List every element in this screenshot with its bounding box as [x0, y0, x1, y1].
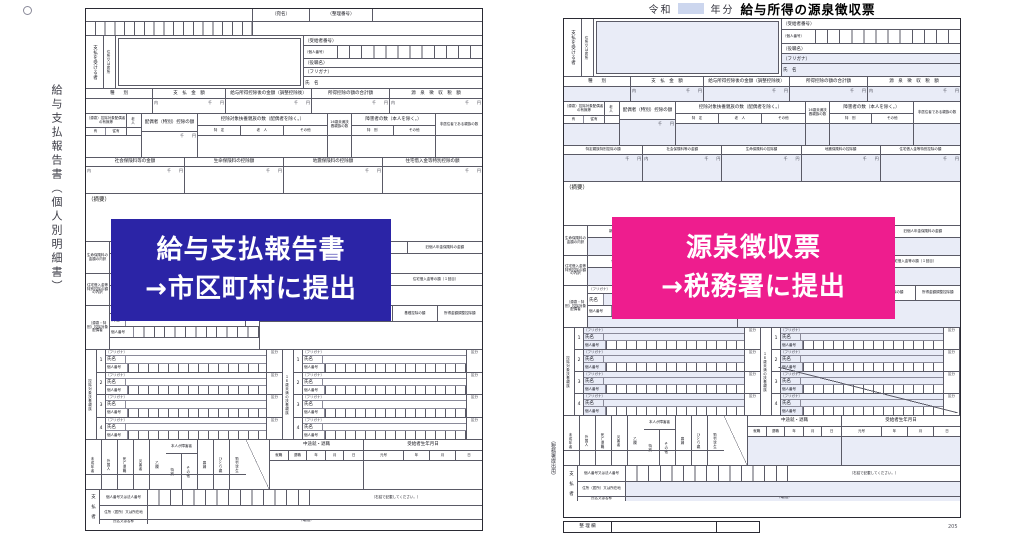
spouse-presence-label: （源泉）控除対象配偶者の有無等 [564, 102, 605, 115]
dependent-fields: （フリガナ） 氏名 個人番号 [302, 395, 467, 417]
header-cell: 特 定 [676, 114, 719, 123]
header-cell: 住宅借入金等特別控除の額 [383, 158, 482, 166]
header-cell: 源 泉 徴 収 税 額 [868, 77, 960, 86]
input-cell: 千 円 [722, 155, 801, 181]
personal-number-row: 個人番号 [781, 385, 943, 393]
name-label: 氏名 [106, 424, 126, 431]
amount-values: 内千 円 千 円 千 円 内千 円 [564, 87, 960, 102]
input-cell: （電話） [148, 520, 482, 524]
dependents-count: 控除対象扶養親族の数（配偶者を除く。） 特 定老 人その他 [676, 102, 806, 145]
spouse-block-label: （源泉・特別）控除対象配偶者 [564, 286, 588, 327]
nonresident-label: 非居住者である親族の数 [914, 102, 960, 124]
left-form-vertical-title: 給与支払報告書（個人別明細書） [48, 84, 64, 294]
header-cell: 未成年者 [86, 440, 102, 489]
personal-number-label: 個人番号 [781, 341, 803, 349]
row-number: 4 [97, 418, 105, 440]
nonresident-label: 非居住者である親族の数 [436, 114, 482, 136]
name-label: 氏名 [781, 356, 801, 362]
name-label: 氏名 [106, 356, 126, 363]
kubun-cell: 区分 [745, 394, 760, 415]
furigana-row: （フリガナ） [782, 54, 960, 64]
personal-number-label: 個人番号 [588, 306, 612, 316]
role-row: （役職名） [782, 44, 960, 54]
header-cell: 勤労学生 [708, 416, 724, 465]
birthdate-subcols: 元号年月日 [364, 451, 482, 461]
dependent-row: 1 （フリガナ） 氏名 個人番号 区分 [294, 350, 482, 373]
header-cell: 死亡退職 [118, 440, 134, 489]
input-cell: 千 円 [802, 155, 881, 181]
header-cell: その他 [872, 114, 914, 123]
name-label: 氏名 [588, 294, 604, 305]
payer-name-label: 氏名又は名称 [100, 520, 148, 524]
senyen-mark: 千 円 [863, 156, 879, 162]
rojin-label: 老人 [605, 102, 619, 115]
header-cell: 社会保険料等の金額 [643, 146, 722, 154]
birthdate-block: 受給者生年月日 元号年月日 [842, 416, 960, 465]
personal-number-label: 個人番号 [303, 431, 325, 439]
overlay-line1: 給与支払報告書 [156, 231, 345, 270]
header-cell: その他 [660, 430, 676, 465]
kubun-label: 区分 [749, 394, 756, 399]
header-cell: 未成年者 [564, 416, 580, 465]
senyen-mark: 千 円 [372, 100, 388, 106]
senyen-mark: 千 円 [465, 100, 481, 106]
form-title: 給与所得の源泉徴収票 [740, 0, 875, 18]
input-cell [564, 124, 619, 145]
senyen-mark: 千 円 [208, 100, 224, 106]
name-row: 氏名 [584, 356, 744, 363]
input-cell: 内千 円 [868, 87, 960, 101]
kubun-cell: 区分 [745, 372, 760, 393]
personal-number-row: （個人番号） [782, 30, 960, 44]
header-cell: 外国人 [102, 440, 118, 489]
header-cell: 元号 [364, 451, 404, 460]
amount-values: 内千 円 千 円 千 円 内千 円 [86, 99, 482, 114]
dependent-fields: （フリガナ） 氏名 個人番号 [105, 395, 267, 417]
row-number: 3 [97, 395, 105, 417]
overlay-line2: →市区町村に提出 [145, 270, 357, 309]
header-cell: 所得控除の額の合計額 [312, 89, 390, 98]
name-row: 氏名 [303, 401, 466, 409]
input-cell [364, 461, 482, 489]
recipient-block: 支払を受ける者 住所又は居所 （受給者番号） （個人番号） （役職名） （フリガ… [564, 19, 960, 77]
name-row: 氏名 [781, 378, 943, 385]
tekiyo-label: （摘要） [88, 195, 110, 203]
dependents-subcols: 特 定老 人その他 [676, 114, 805, 124]
header-cell: 災害者 [134, 440, 150, 489]
input-cell: 千 円 [185, 167, 284, 193]
overlay-line1: 源泉徴収票 [686, 229, 821, 268]
digit-boxes [128, 386, 266, 394]
personal-number-label: 個人番号 [106, 386, 128, 394]
midcareer-block: 中途就・退職 就職退職年月日 [270, 440, 364, 489]
header-cell: その他 [284, 126, 327, 135]
page: 給与支払報告書（個人別明細書） （宛名） （整理番号） 支払を受ける者 住所又は… [0, 0, 1024, 539]
input-cell [260, 322, 482, 349]
digit-boxes [325, 386, 466, 394]
input-cell [914, 124, 960, 145]
senyen-mark: 千 円 [943, 156, 959, 162]
disabled-count-label: 障害者の数（本人を除く。） [830, 102, 913, 114]
name-row: 氏名 [106, 424, 266, 432]
dependent-row: 3 （フリガナ） 氏名 個人番号 区分 [97, 395, 282, 418]
input-cell: 千 円 [704, 87, 790, 101]
personal-number-row: 個人番号 [303, 409, 466, 417]
furigana-label: （フリガナ） [303, 395, 324, 400]
input-cell [270, 461, 363, 489]
header-cell: 月 [326, 451, 345, 460]
uchi-mark: 内 [391, 100, 395, 106]
furigana-label: （フリガナ） [106, 395, 127, 400]
header-cell: 乙欄 [150, 440, 166, 489]
cell [605, 116, 619, 123]
name-label: 氏名 [303, 424, 323, 431]
spouse-presence: （源泉）控除対象配偶者の有無等老人 有従有 [564, 102, 620, 145]
name-label: 氏名 [584, 356, 604, 362]
name-row: 氏名 [303, 356, 466, 364]
status-row: 未成年者外国人死亡退職災害者乙欄 本人が障害者 特別その他 寡婦ひとり親勤労学生… [86, 440, 482, 490]
name-row: 氏名 [106, 379, 266, 387]
self-disabled-label: 本人が障害者 [166, 440, 197, 454]
personal-number-label: 個人番号 [303, 409, 325, 417]
payer-rows: 個人番号又は法人番号 （右詰で記載してください。） 住所（居所）又は所在地 氏名… [100, 490, 482, 524]
furigana-label: （フリガナ） [781, 350, 802, 355]
kubun-cell: 区分 [745, 328, 760, 349]
senyen-mark: 千 円 [365, 168, 381, 174]
tel-label: （電話） [298, 520, 314, 523]
row-number: 3 [772, 372, 780, 393]
header-cell: 社会保険料等の金額 [86, 158, 185, 166]
dependents-rows: 1 （フリガナ） 氏名 個人番号 区分 2 （フリガナ） 氏名 個人番号 区分 … [575, 328, 761, 415]
header-cell: 源 泉 徴 収 税 額 [390, 89, 482, 98]
recipient-block: 支払を受ける者 住所又は居所 （受給者番号） （個人番号） （役職名） （フリガ… [86, 36, 482, 89]
row-number: 2 [772, 350, 780, 371]
under16-count: 16歳未満扶養親族の数 [328, 114, 352, 157]
input-cell [830, 124, 913, 145]
self-disabled-label: 本人が障害者 [644, 416, 675, 430]
uchi-mark: 内 [632, 88, 636, 94]
dependent-fields: （フリガナ） 氏名 個人番号 [105, 373, 267, 395]
digit-boxes [606, 385, 744, 393]
digit-boxes [86, 22, 253, 35]
personal-number-label: （個人番号） [304, 46, 338, 58]
personal-number-row: 個人番号 [584, 363, 744, 371]
dependents-count: 控除対象扶養親族の数（配偶者を除く。） 特 定老 人その他 [198, 114, 328, 157]
furigana-row: （フリガナ） [304, 68, 482, 77]
row-number: 2 [294, 373, 302, 395]
top-digit-row [86, 22, 482, 36]
personal-number-label: 個人番号 [584, 363, 606, 371]
furigana-label: （フリガナ） [303, 418, 324, 423]
dependent-row: 4 （フリガナ） 氏名 個人番号 区分 [294, 418, 482, 440]
dependents-block: 控除対象扶養親族 1 （フリガナ） 氏名 個人番号 区分 2 （フリガナ） 氏名… [564, 328, 960, 416]
seiri-cell [717, 522, 759, 532]
name-label: 氏名 [781, 378, 801, 384]
furigana-label: （フリガナ） [584, 328, 605, 333]
under16-dependents-rows: 1 （フリガナ） 氏名 個人番号 区分 2 （フリガナ） 氏名 個人番号 区分 … [772, 328, 960, 415]
payer-label: 支 払 者 [564, 466, 578, 501]
birthdate-label: 受給者生年月日 [842, 416, 960, 427]
kubun-cell: 区分 [467, 418, 482, 440]
digit-boxes [325, 431, 466, 439]
personal-number-row: 個人番号 [303, 364, 466, 372]
kubun-cell: 区分 [467, 350, 482, 372]
senyen-mark: 千 円 [180, 133, 196, 139]
dependent-fields: （フリガナ） 氏名 個人番号 [780, 372, 944, 393]
payer-number-label: 個人番号又は法人番号 [100, 490, 148, 505]
top-cell [86, 9, 253, 21]
header-cell: 旧個人年金保険料の金額 [408, 242, 482, 253]
dependents-subcols: 特 定老 人その他 [198, 126, 327, 136]
furigana-label: （フリガナ） [584, 372, 605, 377]
name-label: 氏名 [584, 334, 604, 340]
senyen-mark: 千 円 [465, 168, 481, 174]
spouse-presence-label: （源泉）控除対象配偶者の有無等 [86, 114, 127, 127]
name-label: 氏名 [303, 379, 323, 386]
header-cell: ひとり親 [214, 440, 230, 489]
digit-boxes [128, 364, 266, 372]
personal-number-row: 個人番号 [781, 363, 943, 371]
name-row: 氏 名 [782, 64, 960, 76]
dependent-fields: （フリガナ） 氏名 個人番号 [780, 350, 944, 371]
header-cell: その他 [762, 114, 805, 123]
personal-number-row: 個人番号 [781, 407, 943, 415]
kubun-label: 区分 [749, 350, 756, 355]
kubun-label: 区分 [471, 395, 478, 400]
name-row: 氏名 [781, 356, 943, 363]
nonresident-count: 非居住者である親族の数 [914, 102, 960, 145]
name-label: 氏名 [106, 401, 126, 408]
dependent-row: 1 （フリガナ） 氏名 個人番号 区分 [772, 328, 959, 350]
digit-boxes [128, 409, 266, 417]
header-cell: 特 定 [198, 126, 241, 135]
address-box [118, 38, 301, 86]
furigana-label: （フリガナ） [303, 373, 324, 378]
dependent-fields: （フリガナ） 氏名 個人番号 [583, 328, 745, 349]
kubun-label: 区分 [948, 328, 955, 333]
row-number: 2 [575, 350, 583, 371]
dependent-row: 1 （フリガナ） 氏名 個人番号 区分 [575, 328, 760, 350]
payer-rows: 個人番号又は法人番号 （右詰で記載してください。） 住所（居所）又は所在地 氏名… [578, 466, 960, 501]
header-cell: 月 [430, 451, 456, 460]
header-cell: 支 払 金 額 [153, 89, 226, 98]
dependents-count-label: 控除対象扶養親族の数（配偶者を除く。） [676, 102, 805, 114]
header-cell: 乙欄 [628, 416, 644, 465]
kubun-label: 区分 [471, 350, 478, 355]
top-cell [253, 22, 482, 35]
seiri-strip: 整 理 欄 [563, 521, 760, 533]
kubun-label: 区分 [948, 372, 955, 377]
seiri-number-label: （整理番号） [310, 9, 373, 21]
housing-loan-detail-label: 住宅借入金等特別控除の額の内訳 [564, 256, 588, 285]
input-cell: 千 円 [790, 87, 868, 101]
dependent-row: 2 （フリガナ） 氏名 個人番号 区分 [294, 373, 482, 396]
furigana-label: （フリガナ） [584, 350, 605, 355]
row-number: 1 [97, 350, 105, 372]
personal-number-label: 個人番号 [303, 386, 325, 394]
input-cell: 内千 円 [390, 99, 482, 113]
disabled-count-label: 障害者の数（本人を除く。） [352, 114, 435, 126]
header-cell: 特 別 [830, 114, 872, 123]
era-label: 令和 [648, 1, 672, 16]
amount-headers: 種 別支 払 金 額給与所得控除後の金額（調整控除後）所得控除の額の合計額源 泉… [564, 77, 960, 87]
header-cell: その他 [182, 454, 198, 489]
self-disabled: 本人が障害者 特別その他 [166, 440, 198, 489]
top-cell [373, 9, 482, 21]
name-row: 氏名 [584, 334, 744, 341]
digit-boxes [803, 363, 943, 371]
digit-boxes [626, 466, 788, 481]
disabled-subcols: 特 別その他 [830, 114, 913, 124]
dependent-row: 1 （フリガナ） 氏名 個人番号 区分 [97, 350, 282, 373]
dependent-row: 3 （フリガナ） 氏名 個人番号 区分 [294, 395, 482, 418]
header-cell: 支 払 金 額 [631, 77, 704, 86]
dependents-rows: 1 （フリガナ） 氏名 個人番号 区分 2 （フリガナ） 氏名 個人番号 区分 … [97, 350, 283, 439]
header-cell: 日 [344, 451, 363, 460]
personal-number-row: 個人番号 [106, 364, 266, 372]
address-label: 住所又は居所 [582, 19, 594, 76]
insurance-headers: 社会保険料等の金額生命保険料の控除額地震保険料の控除額住宅借入金等特別控除の額 [86, 158, 482, 167]
header-cell: 寡婦 [676, 416, 692, 465]
personal-number-label: （個人番号） [782, 30, 816, 43]
address-area [116, 36, 304, 88]
header-cell: 基礎控除の額 [393, 306, 437, 321]
under16-dependents-label: １６歳未満の扶養親族 [761, 328, 772, 415]
name-row: 氏名 [106, 356, 266, 364]
personal-number-label: 個人番号 [584, 341, 606, 349]
disabled-count: 障害者の数（本人を除く。） 特 別その他 [830, 102, 914, 145]
senyen-mark: 千 円 [658, 121, 674, 127]
kubun-cell: 区分 [467, 395, 482, 417]
self-disabled-subcols: 特別その他 [644, 430, 675, 465]
personal-number-label: 個人番号 [584, 385, 606, 393]
uchi-mark: 内 [87, 168, 91, 174]
personal-number-label: 個人番号 [781, 363, 803, 371]
life-insurance-detail-label: 生命保険料の金額の内訳 [564, 226, 588, 255]
digit-boxes [325, 409, 466, 417]
name-row: 氏 名 [304, 77, 482, 88]
name-row: 氏名 [781, 334, 943, 341]
kubun-cell: 区分 [267, 373, 282, 395]
row-number: 4 [575, 394, 583, 415]
kubun-cell: 区分 [267, 350, 282, 372]
header-cell: 生命保険料の控除額 [722, 146, 801, 154]
senyen-mark: 千 円 [943, 88, 959, 94]
header-cell: 種 別 [564, 77, 631, 86]
header-cell: 年 [785, 427, 804, 436]
senyen-mark: 千 円 [686, 88, 702, 94]
personal-number-label: 個人番号 [584, 407, 606, 415]
midcareer-label: 中途就・退職 [270, 440, 363, 451]
insurance-headers: 特定親族特別控除の額社会保険料等の金額生命保険料の控除額地震保険料の控除額住宅借… [564, 146, 960, 155]
header-cell: 給与所得控除後の金額（調整控除後） [226, 89, 312, 98]
dependents-block: 控除対象扶養親族 1 （フリガナ） 氏名 個人番号 区分 2 （フリガナ） 氏名… [86, 350, 482, 440]
top-strip: （宛名） （整理番号） [86, 9, 482, 22]
header-cell: 所得金額調整控除額 [438, 306, 482, 321]
name-label: 氏名 [781, 334, 801, 340]
tel-label: （電話） [776, 497, 792, 500]
rojin-label: 老人 [127, 114, 141, 127]
birthdate-label: 受給者生年月日 [364, 440, 482, 451]
digit-boxes [134, 327, 259, 337]
name-row: 氏名 [106, 401, 266, 409]
header-cell: 就職 [748, 427, 767, 436]
year-suffix-label: 年分 [710, 1, 734, 16]
name-label: 氏名 [781, 400, 801, 406]
kubun-label: 区分 [271, 373, 278, 378]
midcareer-label: 中途就・退職 [748, 416, 841, 427]
input-cell [110, 338, 259, 349]
input-cell [842, 437, 960, 465]
disabled-count: 障害者の数（本人を除く。） 特 別その他 [352, 114, 436, 157]
tax-office-overlay: 源泉徴収票 →税務署に提出 [612, 217, 895, 319]
personal-number-row: 個人番号 [584, 385, 744, 393]
dependent-row: 2 （フリガナ） 氏名 個人番号 区分 [575, 350, 760, 372]
personal-number-label: 個人番号 [110, 327, 134, 337]
personal-number-row: 個人番号 [106, 409, 266, 417]
personal-number-row: 個人番号 [781, 341, 943, 349]
diagonal-cell [246, 440, 270, 489]
birthdate-subcols: 元号年月日 [842, 427, 960, 437]
right-align-note: （右詰で記載してください。） [788, 466, 960, 481]
personal-number-row: 個人番号 [106, 386, 266, 394]
insurance-values: 千 円 内千 円 千 円 千 円 千 円 [564, 155, 960, 182]
dependent-fields: （フリガナ） 氏名 個人番号 [105, 350, 267, 372]
input-cell: 千 円 [564, 155, 643, 181]
dependent-row: 3 （フリガナ） 氏名 個人番号 区分 [575, 372, 760, 394]
kubun-label: 区分 [271, 350, 278, 355]
furigana-label: （フリガナ） [106, 350, 127, 355]
under16-dependents-rows: 1 （フリガナ） 氏名 個人番号 区分 2 （フリガナ） 氏名 個人番号 区分 … [294, 350, 482, 439]
juari-label: 従有 [106, 128, 127, 135]
status-cols2: 寡婦ひとり親勤労学生 [198, 440, 246, 489]
input-cell: 内千 円 [153, 99, 226, 113]
digit-boxes [148, 490, 310, 505]
status-cols: 未成年者外国人死亡退職災害者乙欄 [564, 416, 644, 465]
kubun-label: 区分 [271, 395, 278, 400]
spouse-deduction: 配偶者（特別）控除の額 千 円 [620, 102, 676, 145]
input-cell [352, 136, 435, 157]
personal-number-row: 個人番号 [303, 386, 466, 394]
furigana-label: （フリガナ） [303, 350, 324, 355]
spouse-presence: （源泉）控除対象配偶者の有無等老人 有従有 [86, 114, 142, 157]
midcareer-subcols: 就職退職年月日 [270, 451, 363, 461]
row-number: 4 [772, 394, 780, 415]
right-form-title: 令和 年分 給与所得の源泉徴収票 [563, 1, 961, 16]
address-box [596, 21, 779, 74]
digit-boxes [816, 30, 960, 43]
personal-number-label: 個人番号 [106, 409, 128, 417]
header-cell: 外国人 [580, 416, 596, 465]
name-label: 氏名 [303, 401, 323, 408]
input-cell [86, 136, 141, 157]
name-row: 氏名 [303, 379, 466, 387]
spouse-deduction-label: 配偶者（特別）控除の額 [142, 114, 197, 132]
kubun-cell: 区分 [745, 350, 760, 371]
header-cell: 地震保険料の控除額 [802, 146, 881, 154]
name-row: 氏名 [584, 378, 744, 385]
dependents-count-row: （源泉）控除対象配偶者の有無等老人 有従有 配偶者（特別）控除の額 千 円 控除… [564, 102, 960, 146]
header-cell: 特別 [644, 430, 660, 465]
payer-name-label: 氏名又は名称 [578, 497, 626, 501]
digit-boxes [128, 431, 266, 439]
dependent-fields: （フリガナ） 氏名 個人番号 [583, 372, 745, 393]
header-cell: 特 別 [352, 126, 394, 135]
uchi-mark: 内 [869, 88, 873, 94]
header-cell: 住宅借入金等の額（１回目） [389, 274, 482, 285]
digit-boxes [325, 364, 466, 372]
payer-label: 支 払 者 [86, 490, 100, 524]
